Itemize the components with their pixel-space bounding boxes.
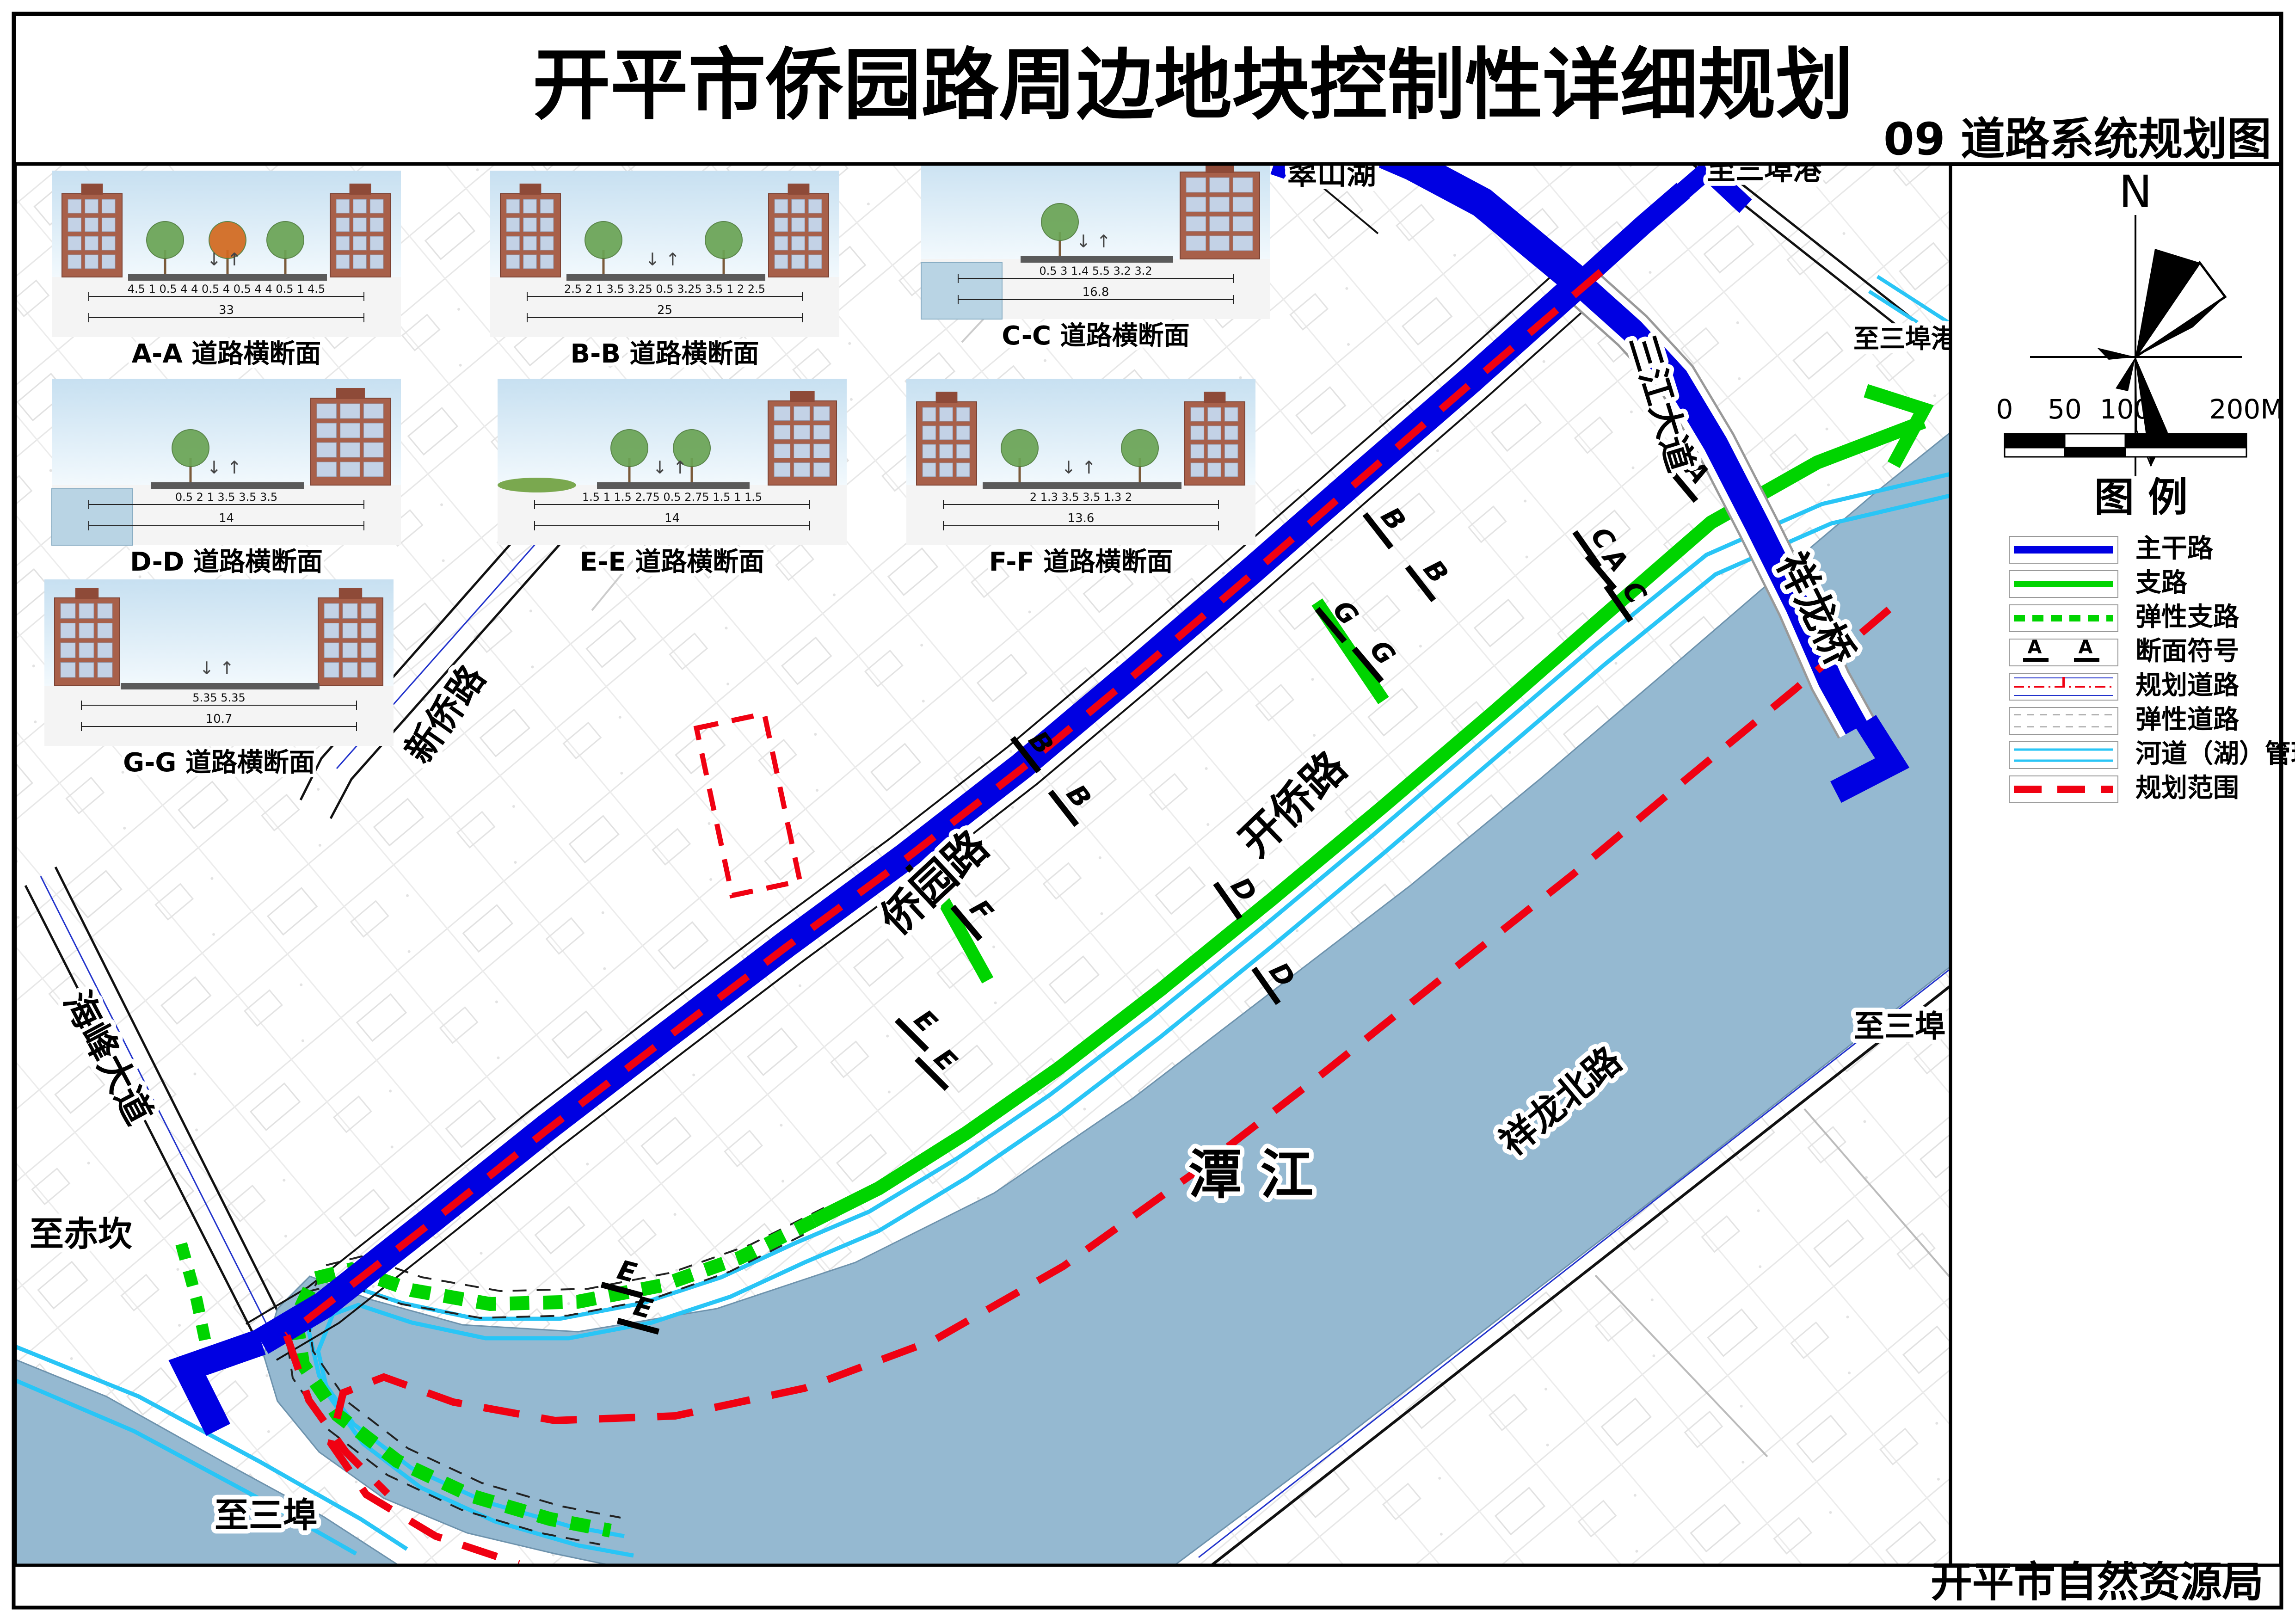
building-window bbox=[1210, 236, 1230, 251]
building-window bbox=[940, 463, 953, 477]
building-window bbox=[353, 218, 367, 232]
building-window bbox=[361, 603, 376, 619]
map-label-dest-sanbu-east: 至三埠 bbox=[1854, 1009, 1945, 1044]
legend-label: 弹性支路 bbox=[2135, 602, 2240, 632]
scale-tick-label: 0 bbox=[1996, 394, 2013, 425]
legend-label: 主干路 bbox=[2135, 534, 2214, 564]
building-window bbox=[1186, 197, 1206, 212]
legend-item-river-mgmt: 河道（湖）管理范围 bbox=[2009, 739, 2295, 769]
building-window bbox=[343, 603, 357, 619]
building-window bbox=[68, 199, 81, 213]
building-window bbox=[774, 406, 790, 421]
building-window bbox=[1191, 463, 1204, 477]
building-tower bbox=[339, 588, 362, 599]
building-window bbox=[792, 255, 805, 269]
tree-canopy bbox=[147, 221, 184, 258]
building-window bbox=[85, 255, 98, 269]
building-window bbox=[1233, 197, 1253, 212]
tree-canopy bbox=[585, 221, 622, 258]
building-window bbox=[363, 443, 383, 457]
building-window bbox=[1210, 197, 1230, 212]
building-window bbox=[1186, 216, 1206, 231]
swatch-section-letter: A bbox=[2028, 637, 2042, 658]
building-window bbox=[956, 426, 970, 440]
building-window bbox=[774, 444, 790, 458]
legend-label: 河道（湖）管理范围 bbox=[2135, 739, 2295, 769]
building-window bbox=[79, 603, 94, 619]
building-window bbox=[85, 236, 98, 250]
footer-bar: 开平市自然资源局 bbox=[14, 1558, 2281, 1607]
section-caption: E-E 道路横断面 bbox=[580, 547, 764, 577]
building-window bbox=[506, 218, 520, 232]
legend-item-main-road: 主干路 bbox=[2009, 534, 2214, 564]
building-window bbox=[79, 663, 94, 678]
legend-swatch-box bbox=[2009, 639, 2118, 666]
scale-segment bbox=[2005, 448, 2065, 457]
building-window bbox=[68, 236, 81, 250]
building-window bbox=[61, 603, 75, 619]
total-dimension-value: 14 bbox=[665, 511, 680, 525]
scale-segment bbox=[2005, 434, 2065, 448]
building-window bbox=[1224, 407, 1238, 421]
building-window bbox=[956, 407, 970, 421]
map-label-dest-sanbu-south: 至三埠 bbox=[215, 1495, 317, 1535]
legend-swatch-box bbox=[2009, 742, 2118, 769]
building-window bbox=[98, 663, 112, 678]
legend-label: 支路 bbox=[2135, 568, 2188, 598]
building-window bbox=[792, 236, 805, 250]
building-window bbox=[794, 463, 810, 477]
building-window bbox=[808, 199, 822, 213]
building-window bbox=[361, 643, 376, 658]
building-window bbox=[370, 199, 383, 213]
building-window bbox=[79, 623, 94, 639]
building-window bbox=[506, 255, 520, 269]
total-dimension-value: 16.8 bbox=[1083, 285, 1109, 299]
building-window bbox=[324, 623, 339, 639]
building-tower bbox=[336, 388, 365, 399]
building-window bbox=[361, 663, 376, 678]
building-window bbox=[923, 426, 936, 440]
building-tower bbox=[1204, 392, 1226, 403]
scale-tick-label: 50 bbox=[2048, 394, 2082, 425]
legend-swatch-box bbox=[2009, 605, 2118, 632]
dimension-values: 2.5 2 1 3.5 3.25 0.5 3.25 3.5 1 2 2.5 bbox=[564, 283, 765, 295]
building-window bbox=[370, 255, 383, 269]
building-window bbox=[68, 218, 81, 232]
section-road bbox=[1021, 256, 1173, 263]
total-dimension-value: 14 bbox=[219, 511, 234, 525]
building-window bbox=[813, 444, 830, 458]
section-water bbox=[52, 489, 133, 545]
dimension-values: 4.5 1 0.5 4 4 0.5 4 0.5 4 4 0.5 1 4.5 bbox=[128, 283, 325, 295]
building-window bbox=[340, 443, 360, 457]
tree-canopy bbox=[267, 221, 304, 258]
building-window bbox=[540, 199, 554, 213]
legend-item-branch-road: 支路 bbox=[2009, 568, 2188, 598]
building-window bbox=[792, 199, 805, 213]
building-window bbox=[956, 463, 970, 477]
building-window bbox=[85, 218, 98, 232]
building-window bbox=[813, 463, 830, 477]
lane-direction-arrows: ↓ ↑ bbox=[1061, 457, 1096, 478]
lane-direction-arrows: ↓ ↑ bbox=[207, 249, 242, 270]
map-canvas: AABBBBCCGGDDFFEEEE 翠山湖至三埠港至三埠港三江大道祥龙桥新侨路… bbox=[15, 124, 1960, 1565]
building-window bbox=[775, 255, 788, 269]
building-window bbox=[98, 623, 112, 639]
lane-direction-arrows: ↓ ↑ bbox=[652, 457, 688, 478]
building-window bbox=[1224, 426, 1238, 440]
building-window bbox=[808, 255, 822, 269]
section-caption: G-G 道路横断面 bbox=[123, 748, 315, 778]
building-window bbox=[353, 199, 367, 213]
building-window bbox=[1210, 178, 1230, 192]
section-road bbox=[566, 274, 765, 281]
building-window bbox=[343, 623, 357, 639]
section-grass bbox=[498, 478, 576, 492]
dimension-values: 0.5 3 1.4 5.5 3.2 3.2 bbox=[1039, 265, 1152, 277]
building-window bbox=[794, 425, 810, 440]
section-road bbox=[151, 482, 304, 489]
legend-title: 图 例 bbox=[2094, 474, 2188, 521]
building-window bbox=[353, 236, 367, 250]
building-window bbox=[940, 407, 953, 421]
legend-label: 弹性道路 bbox=[2135, 705, 2240, 735]
building-window bbox=[792, 218, 805, 232]
section-road bbox=[597, 482, 750, 489]
section-road bbox=[128, 274, 327, 281]
tree-canopy bbox=[1001, 430, 1038, 467]
section-caption: F-F 道路横断面 bbox=[989, 547, 1173, 577]
lane-direction-arrows: ↓ ↑ bbox=[645, 249, 680, 270]
building-window bbox=[61, 643, 75, 658]
building-window bbox=[774, 463, 790, 477]
building-window bbox=[336, 255, 350, 269]
building-window bbox=[317, 462, 337, 477]
building-window bbox=[540, 236, 554, 250]
map-label-dest-chikan: 至赤坎 bbox=[30, 1214, 132, 1254]
building-window bbox=[1191, 426, 1204, 440]
building-window bbox=[1224, 463, 1238, 477]
building-window bbox=[361, 623, 376, 639]
building-tower bbox=[790, 391, 814, 402]
tree-canopy bbox=[1041, 203, 1078, 240]
building-window bbox=[324, 643, 339, 658]
building-window bbox=[1186, 178, 1206, 192]
building-window bbox=[506, 236, 520, 250]
building-window bbox=[324, 663, 339, 678]
building-window bbox=[1191, 407, 1204, 421]
building-window bbox=[336, 199, 350, 213]
building-window bbox=[956, 444, 970, 458]
building-window bbox=[813, 425, 830, 440]
building-window bbox=[98, 603, 112, 619]
building-tower bbox=[350, 184, 371, 195]
legend-swatch-box bbox=[2009, 707, 2118, 734]
building-window bbox=[775, 199, 788, 213]
building-window bbox=[523, 218, 537, 232]
building-window bbox=[1233, 216, 1253, 231]
building-window bbox=[813, 406, 830, 421]
north-label: N bbox=[2119, 166, 2152, 218]
section-water bbox=[921, 263, 1002, 319]
dimension-values: 1.5 1 1.5 2.75 0.5 2.75 1.5 1 1.5 bbox=[582, 491, 762, 504]
building-window bbox=[1233, 236, 1253, 251]
tree-canopy bbox=[611, 430, 648, 467]
building-window bbox=[808, 236, 822, 250]
section-road bbox=[983, 482, 1181, 489]
legend-label: 断面符号 bbox=[2135, 636, 2239, 666]
building-window bbox=[79, 643, 94, 658]
swatch-section-letter: A bbox=[2079, 637, 2093, 658]
section-road bbox=[121, 683, 320, 689]
dimension-values: 2 1.3 3.5 3.5 1.3 2 bbox=[1030, 491, 1132, 504]
page-title: 开平市侨园路周边地块控制性详细规划 bbox=[533, 40, 1853, 130]
legend-label: 规划道路 bbox=[2135, 671, 2240, 701]
section-caption: C-C 道路横断面 bbox=[1002, 321, 1189, 351]
building-window bbox=[343, 643, 357, 658]
building-tower bbox=[75, 588, 98, 599]
building-window bbox=[540, 255, 554, 269]
building-window bbox=[794, 444, 810, 458]
building-window bbox=[775, 218, 788, 232]
tree-canopy bbox=[1121, 430, 1158, 467]
building-window bbox=[102, 218, 115, 232]
tree-canopy bbox=[705, 221, 742, 258]
lane-direction-arrows: ↓ ↑ bbox=[1076, 231, 1111, 252]
section-caption: B-B 道路横断面 bbox=[570, 339, 759, 369]
building-window bbox=[923, 407, 936, 421]
building-window bbox=[317, 423, 337, 438]
map-label-river-tanjiang: 潭 江 bbox=[1188, 1144, 1313, 1206]
building-window bbox=[1210, 216, 1230, 231]
building-window bbox=[68, 255, 81, 269]
building-window bbox=[923, 444, 936, 458]
total-dimension-value: 13.6 bbox=[1068, 511, 1095, 525]
building-window bbox=[363, 423, 383, 438]
scale-tick-label: 100 bbox=[2100, 394, 2151, 425]
building-window bbox=[324, 603, 339, 619]
building-window bbox=[540, 218, 554, 232]
building-window bbox=[1191, 444, 1204, 458]
building-window bbox=[794, 406, 810, 421]
section-caption: A-A 道路横断面 bbox=[132, 339, 321, 369]
building-window bbox=[523, 199, 537, 213]
building-window bbox=[85, 199, 98, 213]
lane-direction-arrows: ↓ ↑ bbox=[207, 457, 242, 478]
building-window bbox=[506, 199, 520, 213]
building-window bbox=[370, 236, 383, 250]
building-window bbox=[1208, 463, 1221, 477]
building-tower bbox=[520, 184, 541, 195]
plan-sheet: 开平市侨园路周边地块控制性详细规划 09 道路系统规划图 AABBBBCCGGD… bbox=[0, 0, 2295, 1622]
scale-segment bbox=[2065, 448, 2125, 457]
dimension-values: 5.35 5.35 bbox=[192, 691, 246, 704]
building-window bbox=[370, 218, 383, 232]
building-window bbox=[336, 236, 350, 250]
legend-label: 规划范围 bbox=[2135, 773, 2239, 803]
building-window bbox=[1233, 178, 1253, 192]
building-window bbox=[1208, 426, 1221, 440]
building-window bbox=[1224, 444, 1238, 458]
building-window bbox=[1208, 407, 1221, 421]
building-window bbox=[61, 623, 75, 639]
building-tower bbox=[788, 184, 810, 195]
scale-tick-label: 200M bbox=[2209, 394, 2284, 425]
building-window bbox=[774, 425, 790, 440]
dimension-values: 0.5 2 1 3.5 3.5 3.5 bbox=[175, 491, 277, 504]
building-window bbox=[340, 423, 360, 438]
building-window bbox=[102, 255, 115, 269]
building-window bbox=[336, 218, 350, 232]
building-window bbox=[317, 443, 337, 457]
building-window bbox=[317, 404, 337, 418]
building-tower bbox=[936, 392, 958, 403]
building-window bbox=[363, 404, 383, 418]
building-window bbox=[775, 236, 788, 250]
building-window bbox=[363, 462, 383, 477]
building-window bbox=[523, 255, 537, 269]
building-window bbox=[940, 444, 953, 458]
building-window bbox=[523, 236, 537, 250]
scale-segment bbox=[2125, 448, 2246, 457]
building-window bbox=[1186, 236, 1206, 251]
building-window bbox=[1208, 444, 1221, 458]
building-tower bbox=[81, 184, 103, 195]
total-dimension-value: 33 bbox=[219, 303, 234, 317]
building-window bbox=[61, 663, 75, 678]
building-window bbox=[98, 643, 112, 658]
building-window bbox=[353, 255, 367, 269]
page-subtitle: 09 道路系统规划图 bbox=[1883, 113, 2271, 165]
building-window bbox=[923, 463, 936, 477]
total-dimension-value: 10.7 bbox=[206, 712, 233, 726]
building-window bbox=[340, 404, 360, 418]
lane-direction-arrows: ↓ ↑ bbox=[199, 658, 234, 678]
map-label-dest-sanbugang-e: 至三埠港 bbox=[1853, 324, 1957, 354]
footer-agency: 开平市自然资源局 bbox=[1931, 1558, 2264, 1606]
section-caption: D-D 道路横断面 bbox=[130, 547, 323, 577]
building-window bbox=[102, 199, 115, 213]
tree-canopy bbox=[172, 430, 209, 467]
building-window bbox=[808, 218, 822, 232]
building-window bbox=[340, 462, 360, 477]
scale-segment bbox=[2065, 434, 2125, 448]
scale-segment bbox=[2125, 434, 2246, 448]
total-dimension-value: 25 bbox=[657, 303, 672, 317]
building-window bbox=[102, 236, 115, 250]
building-window bbox=[940, 426, 953, 440]
building-window bbox=[343, 663, 357, 678]
